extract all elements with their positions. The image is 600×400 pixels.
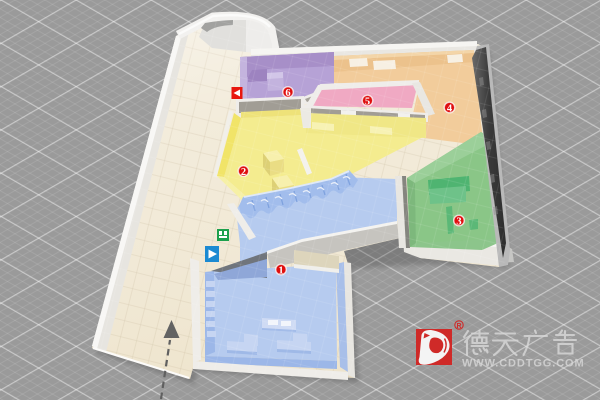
svg-text:6: 6 — [285, 88, 290, 99]
svg-text:WWW.CDDTGG.COM: WWW.CDDTGG.COM — [462, 358, 585, 370]
svg-text:3: 3 — [456, 216, 461, 227]
svg-text:4: 4 — [447, 103, 453, 114]
svg-text:1: 1 — [278, 265, 283, 276]
svg-text:R: R — [456, 323, 461, 330]
svg-text:5: 5 — [365, 96, 370, 107]
svg-text:2: 2 — [241, 167, 246, 178]
